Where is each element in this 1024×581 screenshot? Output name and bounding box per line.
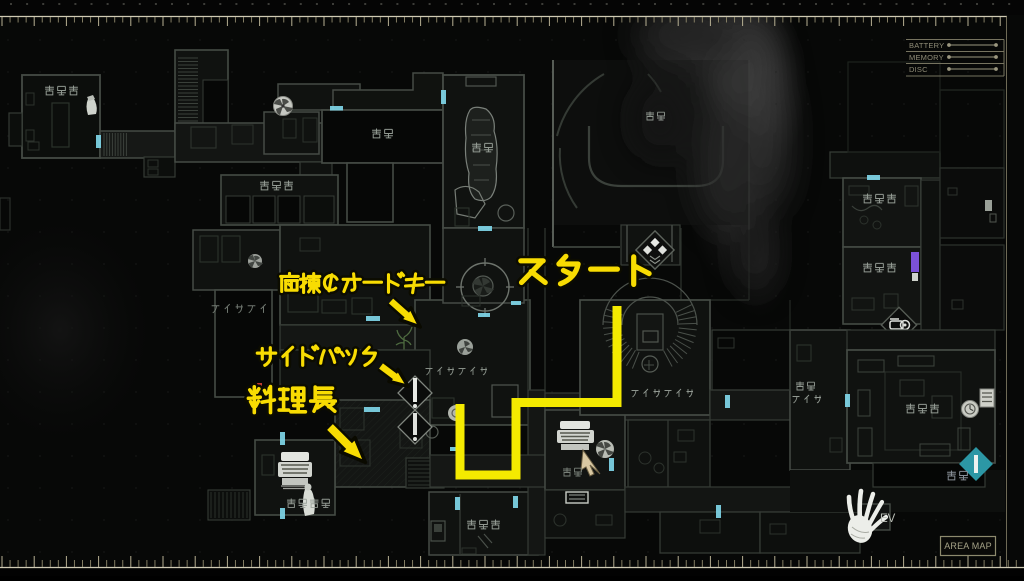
svg-text:DISC: DISC [909,65,928,74]
svg-text:AREA MAP: AREA MAP [944,541,992,551]
svg-text:EV: EV [880,513,896,525]
svg-text:BATTERY: BATTERY [909,41,944,50]
svg-text:MEMORY: MEMORY [909,53,944,62]
